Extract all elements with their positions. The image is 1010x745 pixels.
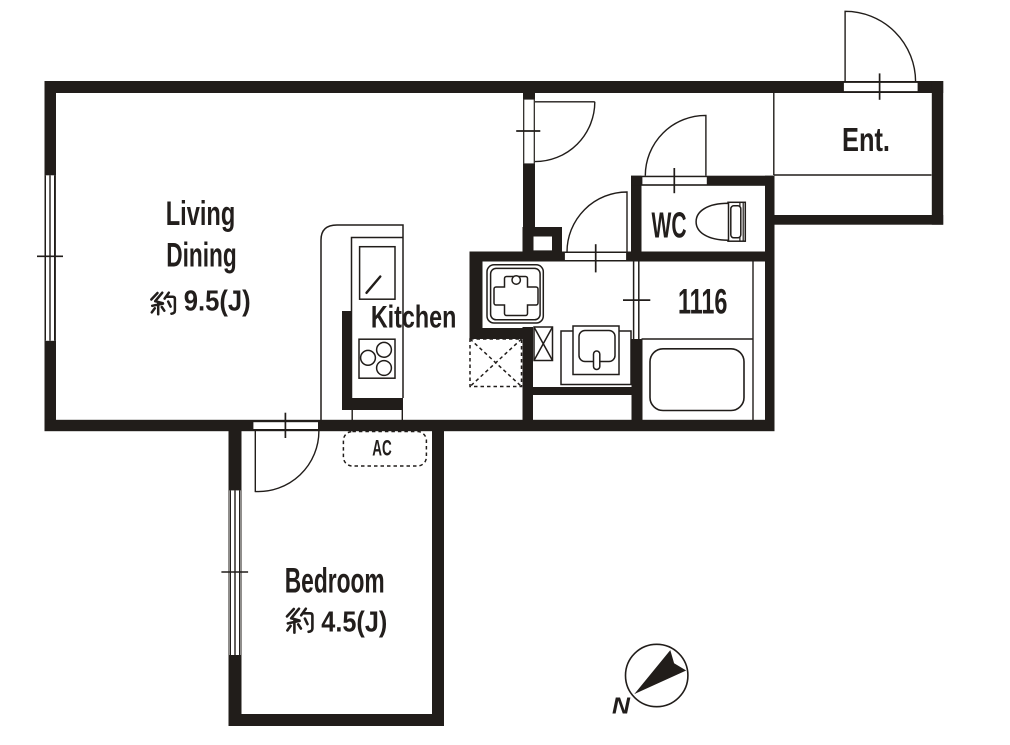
svg-text:4.5(J): 4.5(J) [321,606,387,638]
svg-text:WC: WC [652,205,687,246]
svg-text:9.5(J): 9.5(J) [184,286,251,318]
svg-text:Living: Living [166,195,236,233]
svg-text:Kitchen: Kitchen [371,298,457,334]
svg-text:N: N [612,693,630,719]
svg-text:Ent.: Ent. [842,122,890,159]
svg-text:AC: AC [372,436,392,461]
svg-text:1116: 1116 [678,282,728,321]
svg-text:Bedroom: Bedroom [285,561,385,600]
svg-text:Dining: Dining [166,236,237,274]
